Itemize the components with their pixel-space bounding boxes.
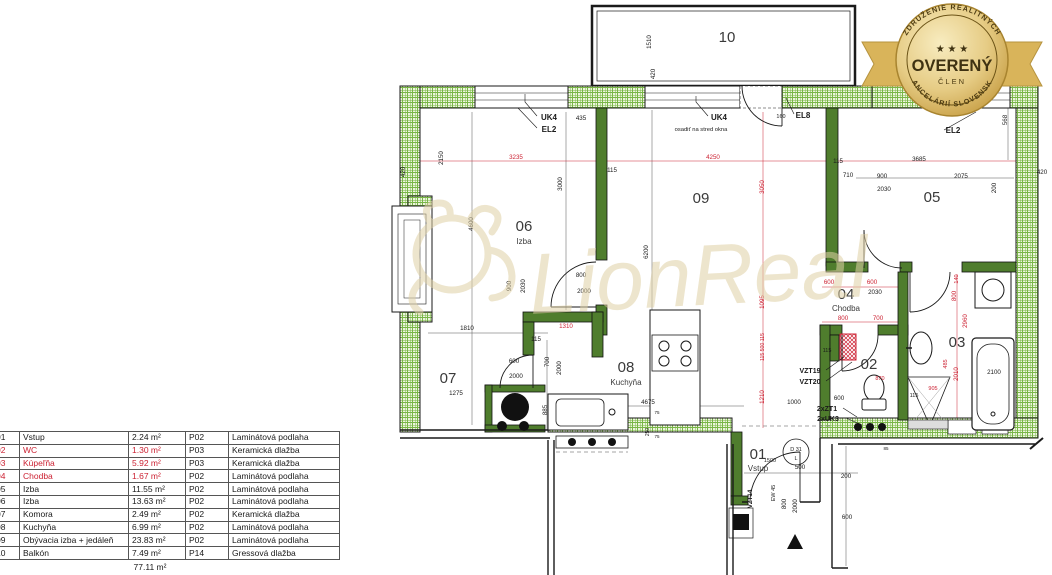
dim-label: 870 — [875, 376, 884, 382]
washing-machine-icon — [975, 272, 1011, 308]
legend-cell: 2.49 m² — [129, 508, 186, 521]
washbasin-icon — [910, 332, 932, 364]
room-name-08: Kuchyňa — [610, 378, 642, 387]
dim-label: 710 — [843, 172, 854, 179]
dim-label: 200 — [841, 473, 852, 480]
dim-label: 1510 — [646, 35, 653, 49]
dim-label: 2100 — [987, 369, 1001, 376]
legend-row-10: 10Balkón7.49 m²P14Gressová dlažba — [0, 547, 340, 560]
room-number-07: 07 — [440, 370, 457, 387]
legend-cell: 01 — [0, 432, 20, 445]
dim-label: 2000 — [509, 373, 523, 380]
entrance-arrow-icon — [787, 534, 803, 549]
legend-cell: 2.24 m² — [129, 432, 186, 445]
dim-label: 2010 — [953, 367, 960, 381]
legend-cell: P02 — [186, 534, 229, 547]
legend-cell: 10 — [0, 547, 20, 560]
dim-label: 435 — [576, 115, 587, 122]
legend-cell: P02 — [186, 470, 229, 483]
dim-label: 2030 — [877, 186, 891, 193]
legend-cell: Vstup — [20, 432, 129, 445]
dim-label: 2000 — [792, 499, 799, 513]
legend-cell: Keramická dlažba — [229, 457, 340, 470]
legend-cell: P02 — [186, 483, 229, 496]
legend-cell: Balkón — [20, 547, 129, 560]
dim-label: 160 — [776, 114, 785, 120]
legend-cell: Laminátová podlaha — [229, 432, 340, 445]
legend-cell: P03 — [186, 444, 229, 457]
legend-cell: Chodba — [20, 470, 129, 483]
dim-label: 2xUK3 — [817, 416, 839, 423]
legend-cell: 09 — [0, 534, 20, 547]
room-number-08: 08 — [618, 359, 635, 376]
room-number-01: 01 — [750, 446, 767, 463]
legend-cell: Kúpeľňa — [20, 457, 129, 470]
legend-cell: Obývacia izba + jedáleň — [20, 534, 129, 547]
dim-label: 800 — [951, 290, 958, 301]
dim-label: 2030 — [868, 289, 882, 296]
dim-label: 3000 — [557, 177, 564, 191]
legend-cell: 5.92 m² — [129, 457, 186, 470]
room-number-05: 05 — [924, 189, 941, 206]
dim-label: 115 500 115 — [760, 333, 766, 361]
legend-cell: 11.55 m² — [129, 483, 186, 496]
legend-cell: 05 — [0, 483, 20, 496]
dim-label: 1275 — [449, 390, 463, 397]
dim-label: 2960 — [962, 314, 969, 328]
badge-subtitle: ČLEN — [938, 77, 966, 86]
dim-label: 600 — [834, 395, 845, 402]
legend-cell: 7.49 m² — [129, 547, 186, 560]
dim-label: 700 — [873, 315, 884, 322]
legend-row-09: 09Obývacia izba + jedáleň23.83 m²P02Lami… — [0, 534, 340, 547]
dim-label: 905 — [928, 386, 937, 392]
dim-label: 140 — [954, 274, 960, 283]
dim-label: 900 — [877, 173, 888, 180]
legend-row-03: 03Kúpeľňa5.92 m²P03Keramická dlažba — [0, 457, 340, 470]
dim-label: 75 — [654, 434, 660, 439]
legend-cell: P02 — [186, 432, 229, 445]
thin-walls — [400, 430, 1043, 575]
dim-label: VZT14 — [747, 489, 754, 508]
legend-row-04: 04Chodba1.67 m²P02Laminátová podlaha — [0, 470, 340, 483]
legend-cell: P02 — [186, 495, 229, 508]
legend-cell: P02 — [186, 521, 229, 534]
dim-label: UK4 — [711, 113, 728, 122]
dim-label: 115 — [607, 167, 617, 174]
room-number-03: 03 — [949, 334, 966, 351]
dim-label: VZT19 — [799, 368, 820, 375]
dim-label: 485 — [943, 359, 949, 368]
legend-row-05: 05Izba11.55 m²P02Laminátová podlaha — [0, 483, 340, 496]
legend-cell: 1.30 m² — [129, 444, 186, 457]
dim-label: L — [794, 456, 797, 462]
legend-cell: 03 — [0, 457, 20, 470]
dim-label: 115 — [833, 158, 843, 165]
room-number-02: 02 — [861, 356, 878, 373]
legend-cell: Kuchyňa — [20, 521, 129, 534]
legend-cell: 6.99 m² — [129, 521, 186, 534]
dim-label: VZT20 — [799, 379, 820, 386]
dim-label: 115 — [531, 336, 541, 343]
legend-row-08: 08Kuchyňa6.99 m²P02Laminátová podlaha — [0, 521, 340, 534]
dim-label: 2030 — [520, 279, 527, 293]
dim-label: 2xZT1 — [817, 406, 837, 413]
boiler-icon — [501, 393, 529, 421]
room-number-09: 09 — [693, 190, 710, 207]
legend-row-06: 06Izba13.63 m²P02Laminátová podlaha — [0, 495, 340, 508]
dim-label: 1210 — [759, 390, 766, 404]
dim-label: 420 — [400, 166, 407, 177]
legend-cell: Izba — [20, 495, 129, 508]
legend-cell: P14 — [186, 547, 229, 560]
legend-cell: Laminátová podlaha — [229, 470, 340, 483]
floorplan-page: 1510420420215046003000620043511511571090… — [0, 0, 1052, 575]
legend-cell: Laminátová podlaha — [229, 495, 340, 508]
room-number-06: 06 — [516, 218, 533, 235]
dim-label: 2075 — [954, 173, 968, 180]
legend-cell: 08 — [0, 521, 20, 534]
dim-label: 700 — [544, 356, 551, 367]
dim-label: EW 45 — [771, 485, 777, 502]
legend-cell: WC — [20, 444, 129, 457]
dim-label: 420 — [1037, 169, 1048, 176]
legend-cell: 07 — [0, 508, 20, 521]
balcony-outline — [592, 6, 855, 86]
dim-label: 115 — [823, 348, 832, 354]
dim-label: 200 — [991, 182, 998, 193]
dim-label: 500 — [795, 464, 806, 471]
dim-label: 2150 — [438, 151, 445, 165]
legend-table: 01Vstup2.24 m²P02Laminátová podlaha02WC1… — [0, 431, 340, 572]
legend-cell: P02 — [186, 508, 229, 521]
watermark: LionReal — [412, 203, 873, 333]
legend-cell: Izba — [20, 483, 129, 496]
dim-label: 600 — [842, 514, 853, 521]
legend-cell: Komora — [20, 508, 129, 521]
legend-cell: 02 — [0, 444, 20, 457]
entry-shaft-icon — [733, 514, 749, 530]
dim-label: 3050 — [759, 180, 766, 194]
legend-cell: 04 — [0, 470, 20, 483]
legend-row-07: 07Komora2.49 m²P02Keramická dlažba — [0, 508, 340, 521]
dim-label: EL2 — [542, 125, 557, 134]
dim-label: EL8 — [796, 111, 811, 120]
dim-label: 600 — [509, 358, 520, 365]
dim-label: 115 — [910, 393, 919, 399]
dimension-lines — [428, 98, 1014, 566]
legend-row-02: 02WC1.30 m²P03Keramická dlažba — [0, 444, 340, 457]
dim-label: 2000 — [556, 361, 563, 375]
legend-total: 77.11 m² — [122, 562, 178, 572]
room-number-10: 10 — [719, 29, 736, 46]
badge-stars: ★ ★ ★ — [936, 44, 968, 55]
legend-cell: Laminátová podlaha — [229, 534, 340, 547]
dim-label: 885 — [542, 404, 549, 415]
legend-cell: 13.63 m² — [129, 495, 186, 508]
dim-label: EL2 — [946, 126, 961, 135]
legend-cell: Laminátová podlaha — [229, 521, 340, 534]
legend-cell: Keramická dlažba — [229, 444, 340, 457]
dim-label: 4675 — [641, 399, 655, 406]
dim-label: 75 — [654, 410, 660, 415]
legend-cell: Keramická dlažba — [229, 508, 340, 521]
dim-label: 4250 — [706, 154, 720, 161]
legend-table-body: 01Vstup2.24 m²P02Laminátová podlaha02WC1… — [0, 432, 340, 560]
legend-cell: Laminátová podlaha — [229, 483, 340, 496]
dim-label: 3235 — [509, 154, 523, 161]
legend-row-01: 01Vstup2.24 m²P02Laminátová podlaha — [0, 432, 340, 445]
watermark-text: LionReal — [526, 219, 873, 333]
badge-title: OVERENÝ — [912, 56, 993, 75]
dim-label: 568 — [1002, 114, 1009, 125]
legend-cell: 23.83 m² — [129, 534, 186, 547]
dim-label: 420 — [650, 68, 657, 79]
stove-icon — [652, 335, 698, 371]
dim-label: osadiť na stred okna — [675, 127, 729, 133]
dim-label: 800 — [781, 498, 788, 509]
dim-label: UK4 — [541, 113, 558, 122]
dim-label: 85 — [883, 446, 889, 451]
dim-label: 1000 — [787, 399, 801, 406]
legend-cell: 1.67 m² — [129, 470, 186, 483]
legend-cell: P03 — [186, 457, 229, 470]
dim-label: 1810 — [460, 325, 474, 332]
dim-label: D 31 — [790, 447, 802, 453]
dim-label: 250 — [645, 428, 651, 437]
legend-cell: 06 — [0, 495, 20, 508]
dim-label: 3685 — [912, 156, 926, 163]
room-name-01: Vstup — [748, 464, 769, 473]
legend-cell: Gressová dlažba — [229, 547, 340, 560]
